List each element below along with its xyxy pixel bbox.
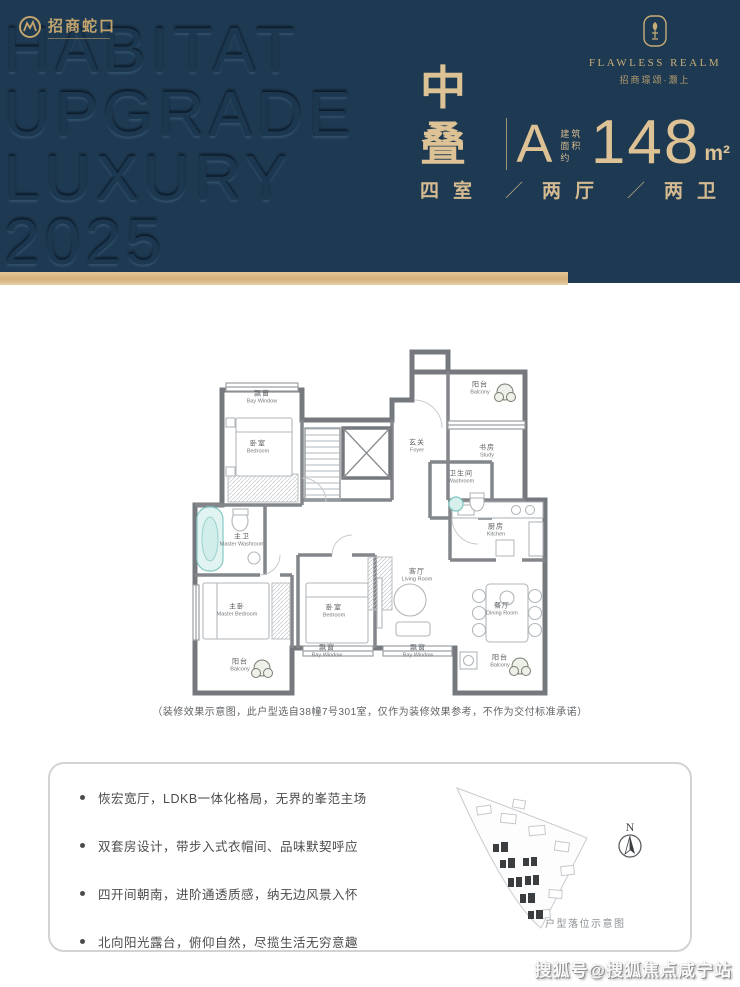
room-label: 厨房Kitchen bbox=[463, 524, 529, 539]
project-logo-title: FLAWLESS REALM bbox=[575, 57, 735, 69]
area-prefix: 建筑 面积约 bbox=[560, 128, 586, 164]
bullet-dot-icon bbox=[80, 843, 85, 848]
header-panel: HABITAT UPGRADE LUXURY 2025 招商蛇口 FLAWLES… bbox=[0, 0, 740, 283]
room-label: 卧室Bedroom bbox=[301, 605, 367, 620]
embossed-line: UPGRADE bbox=[4, 82, 484, 146]
room-zh: 阳台 bbox=[447, 382, 513, 390]
room-zh: 飘窗 bbox=[385, 645, 451, 653]
room-zh: 厨房 bbox=[463, 524, 529, 532]
room-en: Bay Window bbox=[385, 653, 451, 660]
brand-logo-subline bbox=[48, 38, 110, 39]
feature-text: 北向阳光露台，俯仰自然，尽揽生活无穷意趣 bbox=[98, 932, 358, 951]
feature-item: 双套房设计，带步入式衣帽间、品味默契呼应 bbox=[80, 836, 440, 855]
washbasin bbox=[449, 497, 463, 511]
room-en: Bedroom bbox=[301, 613, 367, 620]
room-zh: 玄关 bbox=[384, 440, 450, 448]
room-zh: 飘窗 bbox=[229, 391, 295, 399]
layout-baths: 两卫 bbox=[664, 176, 730, 203]
embossed-title: HABITAT UPGRADE LUXURY 2025 bbox=[4, 18, 484, 274]
brand-logo: 招商蛇口 bbox=[18, 15, 116, 39]
room-en: Balcony bbox=[207, 667, 273, 674]
room-label: 阳台Balcony bbox=[467, 655, 533, 670]
room-label: 阳台Balcony bbox=[207, 659, 273, 674]
embossed-line: LUXURY bbox=[4, 146, 484, 210]
poster-page: HABITAT UPGRADE LUXURY 2025 招商蛇口 FLAWLES… bbox=[0, 0, 740, 987]
area-prefix-line: 建筑 bbox=[560, 128, 586, 140]
watermark: 搜狐号@搜狐焦点咸宁站 bbox=[534, 956, 732, 981]
room-label: 阳台Balcony bbox=[447, 382, 513, 397]
room-zh: 飘窗 bbox=[294, 645, 360, 653]
compass: N bbox=[619, 820, 641, 857]
room-zh: 阳台 bbox=[207, 659, 273, 667]
room-label: 飘窗Bay Window bbox=[385, 645, 451, 660]
room-en: Bay Window bbox=[229, 399, 295, 406]
plan-caption: （装修效果示意图，此户型选自38幢7号301室，仅作为装修效果参考，不作为交付标… bbox=[0, 703, 740, 718]
room-label: 主卫Master Washroom bbox=[209, 534, 275, 549]
floor-plan: 飘窗Bay Window 卧室Bedroom 阳台Balcony 书房Study… bbox=[0, 335, 740, 730]
room-en: Balcony bbox=[447, 390, 513, 397]
embossed-line: 2025 bbox=[4, 210, 484, 274]
brand-logo-icon bbox=[18, 15, 42, 39]
layout-separator: ／ bbox=[627, 177, 645, 203]
floor-plan-svg bbox=[0, 335, 740, 730]
feature-list: 恢宏宽厅，LDKB一体化格局，无界的峯范主场 双套房设计，带步入式衣帽间、品味默… bbox=[80, 788, 440, 980]
room-label: 客厅Living Room bbox=[384, 569, 450, 584]
room-en: Master Bedroom bbox=[204, 612, 270, 619]
room-zh: 主卧 bbox=[204, 604, 270, 612]
project-logo-subtitle: 招商璟颂·灏上 bbox=[575, 73, 735, 86]
room-label: 飘窗Bay Window bbox=[294, 645, 360, 660]
room-en: Bay Window bbox=[294, 653, 360, 660]
room-en: Dining Room bbox=[469, 611, 535, 618]
site-plan-caption: 户型落位示意图 bbox=[545, 915, 705, 930]
room-en: Balcony bbox=[467, 663, 533, 670]
room-label: 飘窗Bay Window bbox=[229, 391, 295, 406]
room-zh: 卫生间 bbox=[428, 471, 494, 479]
room-en: Study bbox=[454, 453, 520, 460]
area-prefix-line: 面积约 bbox=[560, 140, 586, 164]
layout-separator: ／ bbox=[505, 177, 523, 203]
room-zh: 卧室 bbox=[225, 441, 291, 449]
unit-layout: 四室 ／ 两厅 ／ 两卫 bbox=[420, 176, 730, 203]
brand-logo-text: 招商蛇口 bbox=[48, 15, 116, 36]
room-zh: 餐厅 bbox=[469, 603, 535, 611]
area-unit: m² bbox=[704, 142, 730, 166]
room-zh: 书房 bbox=[454, 445, 520, 453]
project-emblem-icon bbox=[642, 14, 668, 48]
unit-type: 中叠 bbox=[420, 60, 502, 172]
room-zh: 主卫 bbox=[209, 534, 275, 542]
room-label: 书房Study bbox=[454, 445, 520, 460]
gold-divider-bar bbox=[0, 272, 568, 285]
room-en: Master Washroom bbox=[209, 542, 275, 549]
room-zh: 阳台 bbox=[467, 655, 533, 663]
room-en: Living Room bbox=[384, 577, 450, 584]
bullet-dot-icon bbox=[80, 891, 85, 896]
room-label: 卫生间Washroom bbox=[428, 471, 494, 486]
room-label: 玄关Foyer bbox=[384, 440, 450, 455]
unit-title: 中叠 A 建筑 面积约 148 m² bbox=[420, 110, 730, 172]
feature-text: 恢宏宽厅，LDKB一体化格局，无界的峯范主场 bbox=[98, 788, 367, 807]
bullet-dot-icon bbox=[80, 939, 85, 944]
feature-item: 四开间朝南，进阶通透质感，纳无边风景入怀 bbox=[80, 884, 440, 903]
feature-text: 双套房设计，带步入式衣帽间、品味默契呼应 bbox=[98, 836, 358, 855]
unit-title-divider bbox=[506, 118, 508, 170]
compass-label: N bbox=[626, 820, 635, 834]
feature-item: 恢宏宽厅，LDKB一体化格局，无界的峯范主场 bbox=[80, 788, 440, 807]
room-zh: 卧室 bbox=[301, 605, 367, 613]
room-en: Bedroom bbox=[225, 449, 291, 456]
room-zh: 客厅 bbox=[384, 569, 450, 577]
feature-text: 四开间朝南，进阶通透质感，纳无边风景入怀 bbox=[98, 884, 358, 903]
unit-plan-letter: A bbox=[516, 116, 552, 172]
room-en: Washroom bbox=[428, 479, 494, 486]
room-en: Kitchen bbox=[463, 532, 529, 539]
layout-rooms: 四室 bbox=[420, 176, 486, 203]
room-label: 主卧Master Bedroom bbox=[204, 604, 270, 619]
room-label: 卧室Bedroom bbox=[225, 441, 291, 456]
room-en: Foyer bbox=[384, 448, 450, 455]
bullet-dot-icon bbox=[80, 795, 85, 800]
project-logo: FLAWLESS REALM 招商璟颂·灏上 bbox=[575, 14, 735, 86]
room-label: 餐厅Dining Room bbox=[469, 603, 535, 618]
feature-item: 北向阳光露台，俯仰自然，尽揽生活无穷意趣 bbox=[80, 932, 440, 951]
layout-halls: 两厅 bbox=[542, 176, 608, 203]
area-value: 148 bbox=[591, 114, 700, 172]
